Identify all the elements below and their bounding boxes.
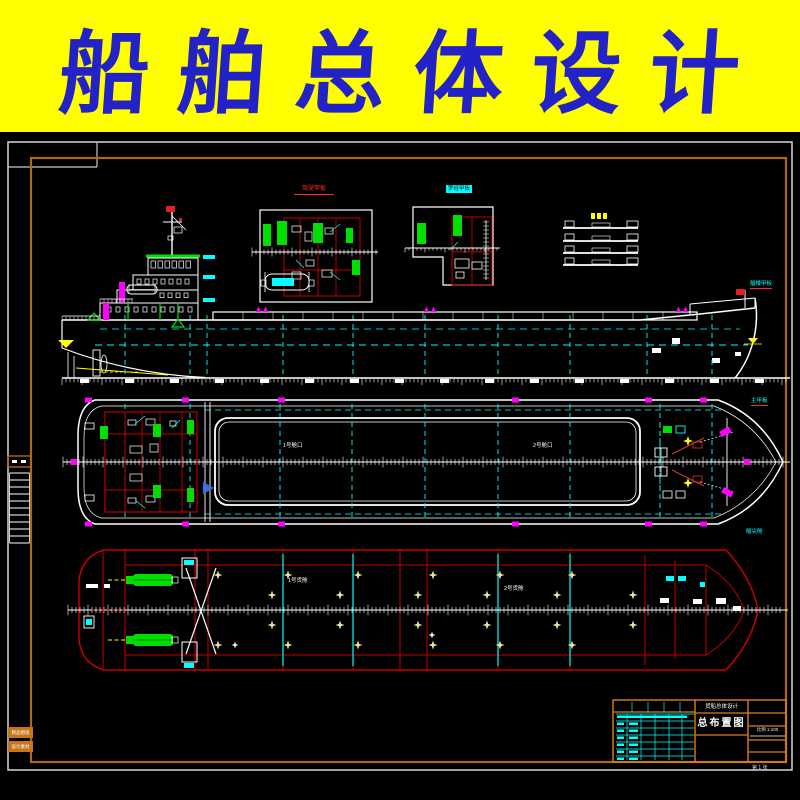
titleblock-title: 总布置图: [696, 714, 747, 729]
hatch2-label: 2号舱口: [533, 443, 553, 449]
stamp-2: 设计素材: [8, 741, 33, 752]
page: 船舶总体设计 驾驶甲板 罗经甲板 艏楼甲板 主甲板 艏尖舱 1号舱口 2号舱口 …: [0, 0, 800, 800]
detail-plan-1: [252, 210, 378, 302]
bottom-hold2-label: 2号货舱: [504, 586, 524, 592]
plan-deck-label: 主甲板: [751, 398, 768, 406]
stamp-1: 精品图纸: [8, 727, 33, 738]
scale-ladder: [8, 456, 31, 543]
drawing-frame: [8, 142, 792, 770]
detail1-label: 驾驶甲板: [294, 186, 334, 195]
titleblock-project: 货船总体设计: [696, 702, 747, 710]
plan-bow-label: 艏尖舱: [746, 529, 763, 535]
deck-profiles-stack: [563, 213, 638, 265]
side-bow-label: 艏楼甲板: [750, 281, 772, 289]
titleblock-scale-row: 比例 1:100: [749, 727, 786, 733]
detail-plan-2: [405, 207, 500, 285]
hatch1-label: 1号舱口: [283, 443, 303, 449]
double-bottom-plan-view: [68, 550, 788, 670]
banner-title: 船舶总体设计: [55, 1, 772, 131]
cad-drawing-area: 驾驶甲板 罗经甲板 艏楼甲板 主甲板 艏尖舱 1号舱口 2号舱口 1号货舱 2号…: [0, 132, 800, 800]
banner: 船舶总体设计: [0, 0, 800, 132]
detail2-label: 罗经甲板: [446, 185, 472, 193]
main-deck-plan-view: [63, 398, 790, 527]
cad-canvas: [0, 132, 800, 800]
bottom-hold1-label: 1号货舱: [288, 578, 308, 584]
titleblock-sheet-note: 第 1 张: [752, 764, 768, 771]
